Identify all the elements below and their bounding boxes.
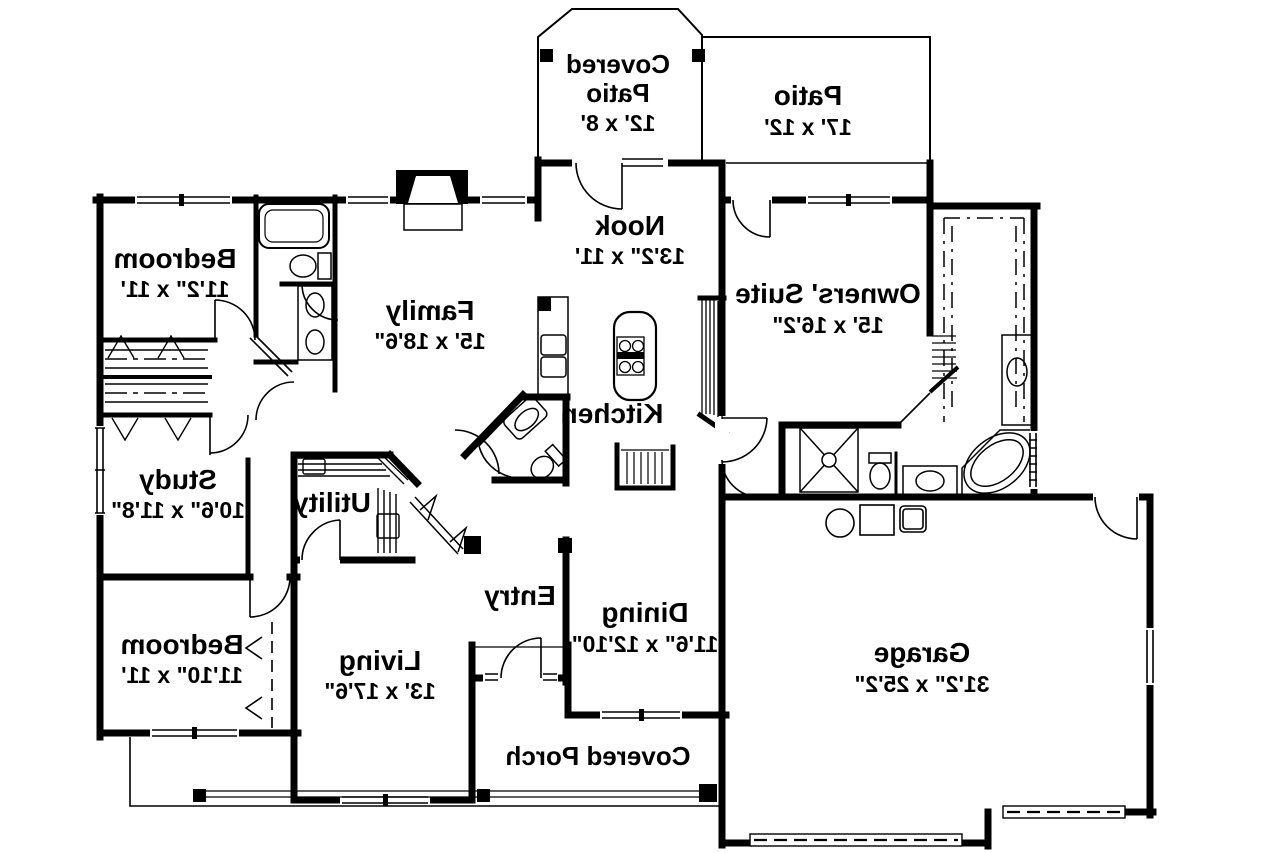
svg-text:Nook: Nook <box>595 210 665 241</box>
svg-text:17' x 12': 17' x 12' <box>764 114 852 140</box>
room-label-study: Study 10'6" x 11'8" <box>111 464 245 523</box>
svg-text:11'2" x 11': 11'2" x 11' <box>121 276 230 302</box>
bedroom2-closet <box>246 622 272 728</box>
room-label-entry: Entry <box>484 580 556 611</box>
svg-text:Covered Porch: Covered Porch <box>506 741 691 771</box>
toilet <box>290 253 331 279</box>
svg-text:Study: Study <box>139 464 217 495</box>
room-label-patio: Patio 17' x 12' <box>764 80 852 140</box>
svg-text:Garage: Garage <box>874 637 971 668</box>
svg-text:15' x 18'6": 15' x 18'6" <box>374 328 485 354</box>
svg-text:Living: Living <box>339 645 421 676</box>
washer <box>303 459 325 474</box>
patio-post <box>540 49 553 62</box>
svg-text:12' x 8': 12' x 8' <box>581 110 656 136</box>
room-label-living: Living 13' x 17'6" <box>324 645 435 704</box>
svg-text:Owners' Suite: Owners' Suite <box>735 278 921 309</box>
svg-text:Family: Family <box>385 295 474 326</box>
fireplace <box>396 170 468 230</box>
svg-text:31'2" x 25'2": 31'2" x 25'2" <box>854 671 989 697</box>
room-label-family: Family 15' x 18'6" <box>374 295 485 354</box>
wall-pivot <box>558 538 572 553</box>
room-label-covered-patio: Covered Patio 12' x 8' <box>566 49 670 136</box>
patio-post <box>692 49 705 62</box>
walkin-closet-rods <box>944 218 1024 422</box>
svg-text:Utility: Utility <box>293 487 371 518</box>
room-labels: Covered Patio 12' x 8' Patio 17' x 12' N… <box>111 49 989 771</box>
porch-column <box>477 789 490 802</box>
garage-doors <box>750 806 1125 846</box>
fridge <box>538 297 551 311</box>
owners-bath <box>800 335 1042 505</box>
svg-text:11'6" x 12'10": 11'6" x 12'10" <box>572 631 719 657</box>
svg-text:Covered: Covered <box>566 49 670 79</box>
water-heater <box>826 509 854 537</box>
room-label-kitchen: Kitchen <box>561 398 664 429</box>
svg-text:13'2" x 11': 13'2" x 11' <box>575 243 685 269</box>
kitchen-island <box>614 312 656 400</box>
svg-text:Entry: Entry <box>484 580 556 611</box>
room-label-utility: Utility <box>293 487 371 518</box>
floor-plan-canvas: Covered Patio 12' x 8' Patio 17' x 12' N… <box>0 0 1280 853</box>
room-label-bedroom-2: Bedroom 11'10" x 11' <box>121 629 244 688</box>
room-label-covered-porch: Covered Porch <box>506 741 691 771</box>
double-vanity <box>298 286 332 360</box>
svg-text:13' x 17'6": 13' x 17'6" <box>324 678 435 704</box>
svg-text:Patio: Patio <box>586 78 650 108</box>
porch-column <box>699 784 717 802</box>
svg-text:15' x 16'2": 15' x 16'2" <box>772 312 883 338</box>
closet-vanity <box>1002 335 1032 425</box>
room-label-dining: Dining 11'6" x 12'10" <box>572 597 719 657</box>
room-label-nook: Nook 13'2" x 11' <box>575 210 685 269</box>
svg-text:11'10" x 11': 11'10" x 11' <box>121 662 243 688</box>
garage-appliances <box>826 505 926 537</box>
svg-text:Dining: Dining <box>601 597 688 628</box>
linen-shelves <box>898 336 958 425</box>
shower <box>800 428 858 492</box>
svg-text:10'6" x 11'8": 10'6" x 11'8" <box>111 497 245 523</box>
svg-text:Kitchen: Kitchen <box>561 398 664 429</box>
svg-text:Patio: Patio <box>774 80 842 111</box>
hall-closets <box>105 336 208 440</box>
floor-plan-page: Covered Patio 12' x 8' Patio 17' x 12' N… <box>0 0 1280 853</box>
porch-column <box>193 789 206 802</box>
fridge-counter <box>538 297 568 395</box>
svg-text:Bedroom: Bedroom <box>114 243 237 274</box>
room-label-bedroom-1: Bedroom 11'2" x 11' <box>114 243 237 302</box>
room-label-garage: Garage 31'2" x 25'2" <box>854 637 989 697</box>
kitchen-sink-counter <box>621 450 669 484</box>
powder-sink <box>502 395 549 441</box>
owners-vanity <box>903 466 957 497</box>
angled-closet <box>410 496 466 554</box>
wall-pivot <box>464 536 481 554</box>
svg-text:Bedroom: Bedroom <box>121 629 244 660</box>
owners-toilet <box>869 453 891 489</box>
porch-railing <box>205 791 706 797</box>
room-label-owners-suite: Owners' Suite 15' x 16'2" <box>735 278 921 338</box>
